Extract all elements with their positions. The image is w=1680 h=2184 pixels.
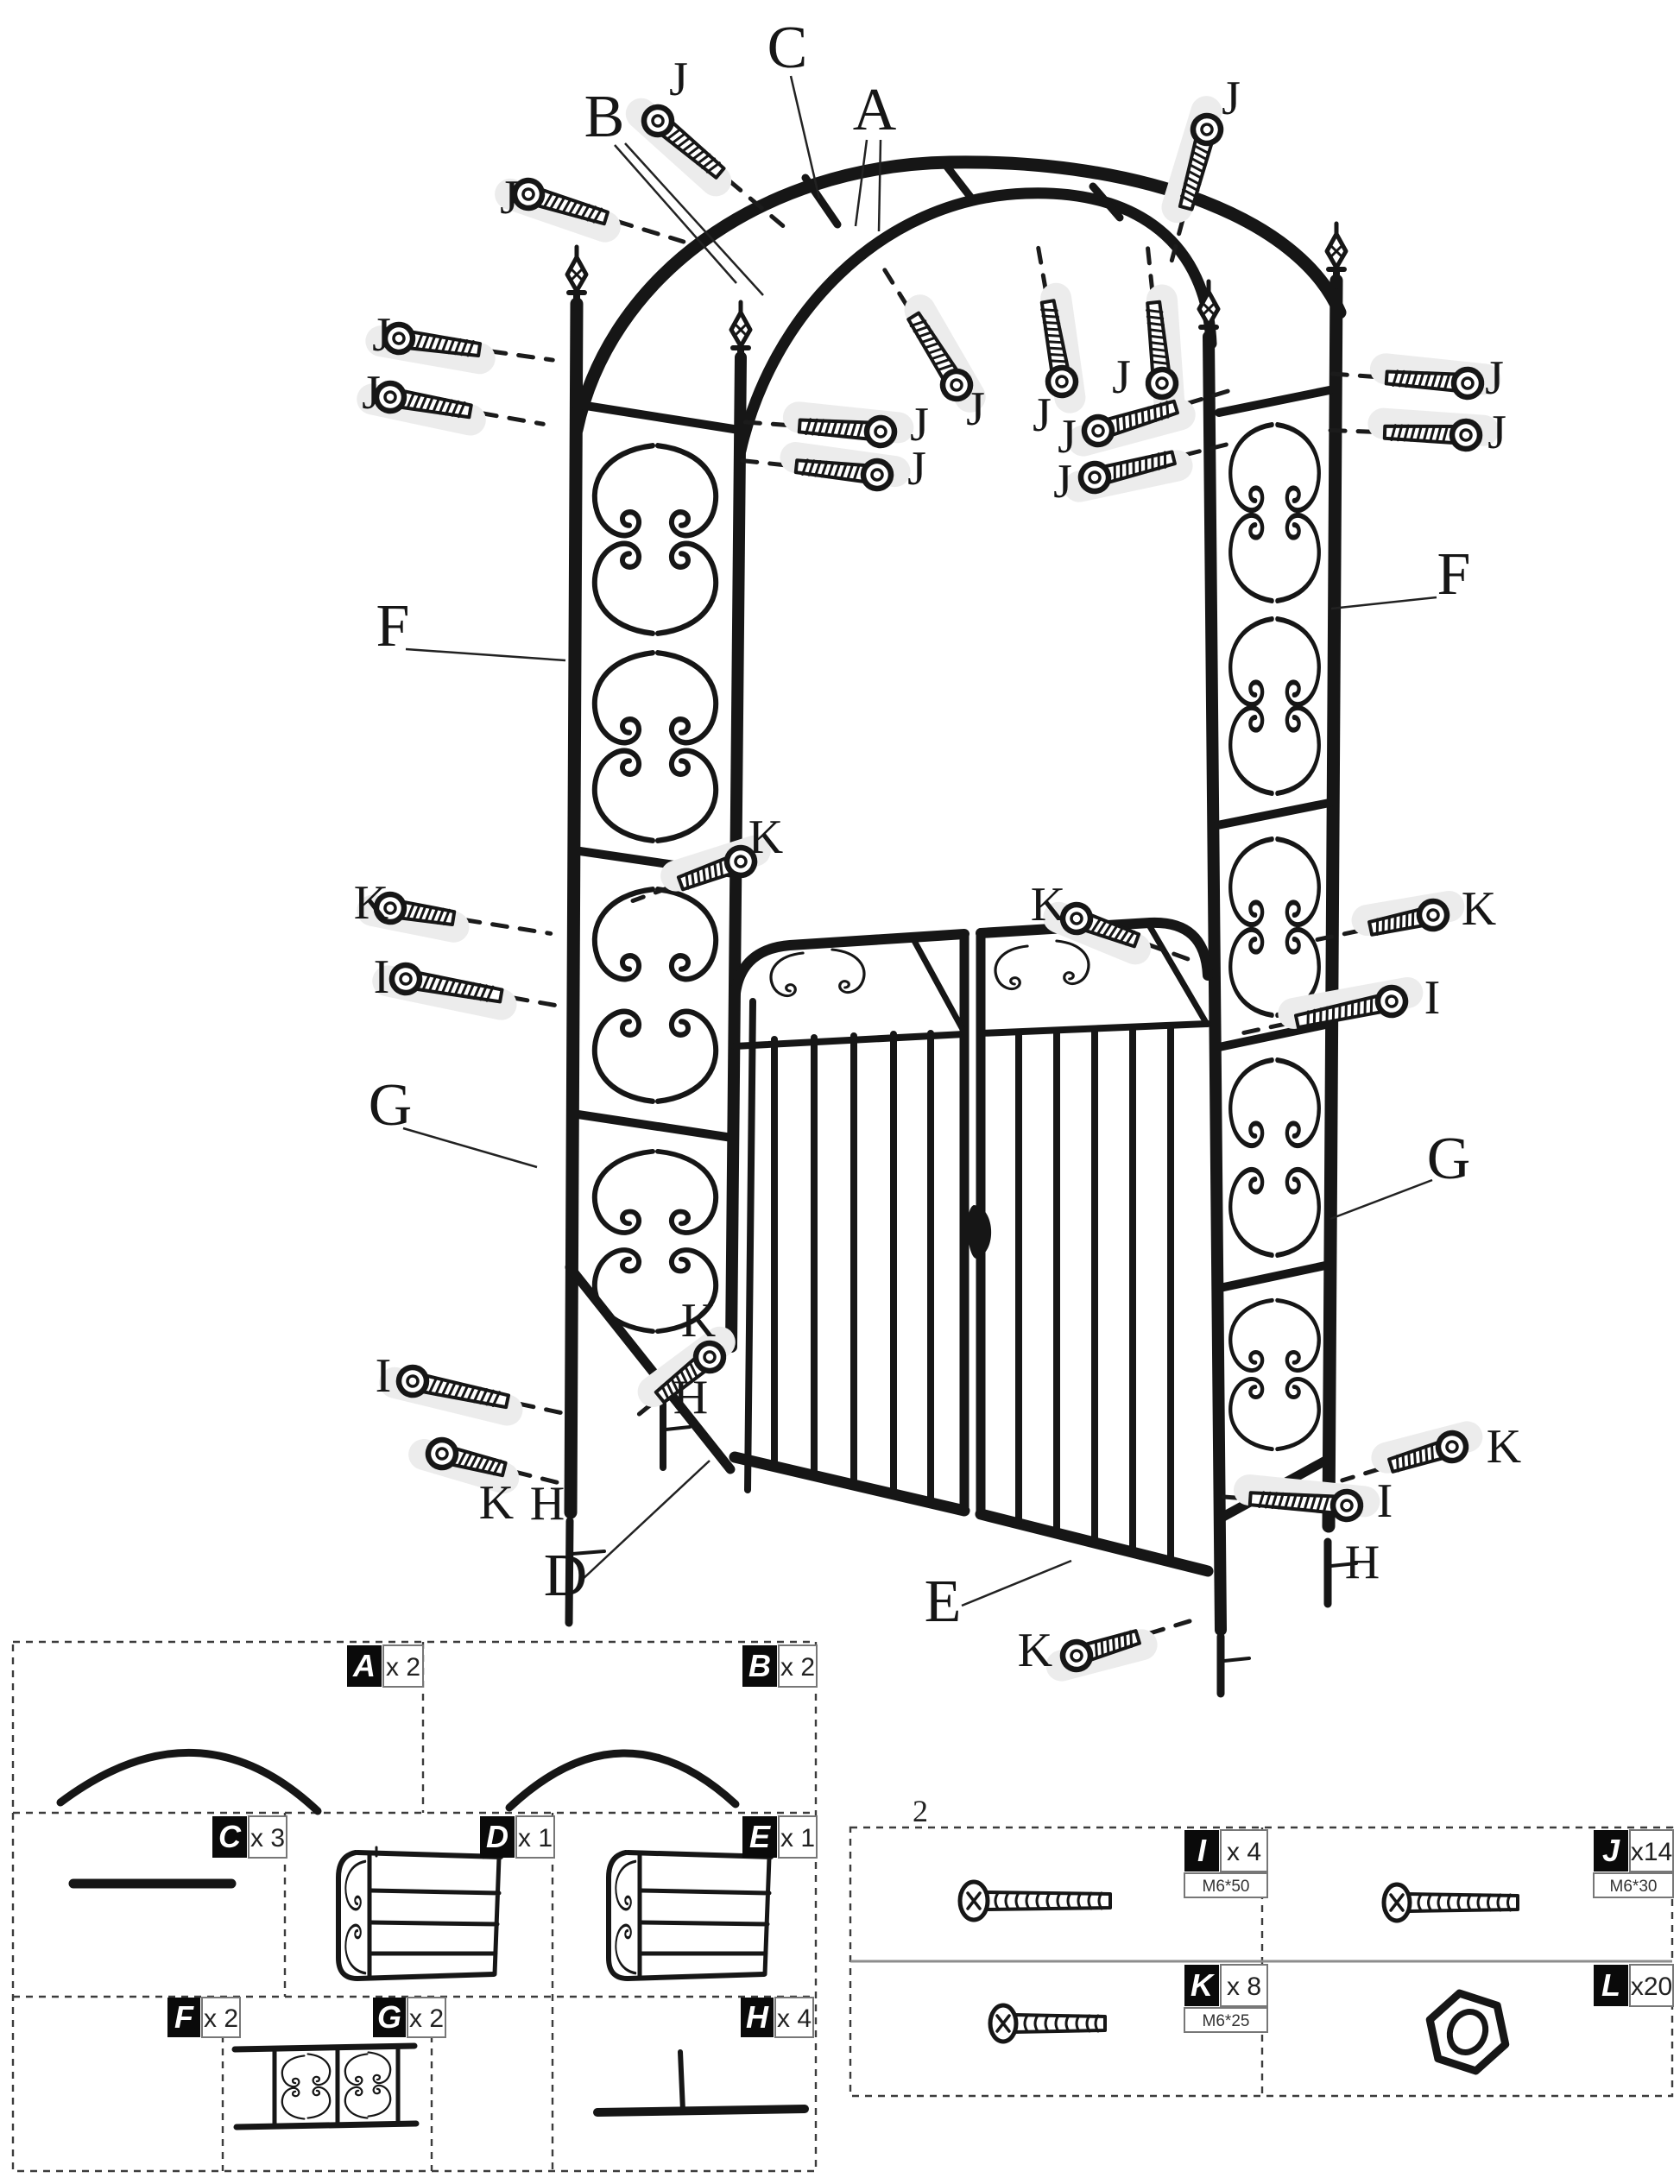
finial-icon — [567, 247, 586, 309]
exploded-screw-J — [1156, 110, 1225, 274]
callout-label-K: K — [1487, 1420, 1521, 1474]
screw-insert-dashes — [1149, 1618, 1200, 1633]
hardware-letter: L — [1601, 1967, 1620, 2003]
hardware-size: M6*25 — [1203, 2012, 1250, 2030]
screw-insert-dashes — [1342, 1469, 1380, 1480]
exploded-screw-J — [380, 322, 555, 374]
screw-I-icon — [960, 1882, 1110, 1920]
part-letter: D — [486, 1819, 508, 1854]
hardware-badge-L: L x20 — [1594, 1965, 1673, 2006]
callout-label-J: J — [500, 171, 519, 224]
screw-K-icon — [1366, 898, 1453, 942]
leader-line — [580, 1461, 710, 1581]
hardware-count: x20 — [1631, 1973, 1672, 2001]
exploded-screw-J — [733, 446, 895, 490]
callout-label-J: J — [362, 366, 381, 420]
screw-insert-dashes — [491, 351, 553, 360]
screw-insert-dashes — [880, 262, 907, 306]
part-count: x 2 — [409, 2004, 444, 2033]
screw-J-icon — [1034, 298, 1079, 401]
screw-insert-dashes — [633, 1404, 650, 1418]
part-A-arc — [60, 1752, 318, 1811]
part-letter: A — [352, 1648, 376, 1683]
exploded-screw-K — [1338, 1429, 1473, 1493]
callout-label-I: I — [1377, 1474, 1393, 1528]
exploded-screw-I — [393, 1364, 572, 1428]
hardware-badge-I: I x 4 M6*50 — [1184, 1830, 1267, 1897]
leader-line — [1331, 597, 1437, 609]
screw-J-icon — [371, 381, 475, 426]
part-badge-C: C x 3 — [212, 1816, 287, 1858]
screw-J-icon — [508, 176, 611, 232]
part-count: x 1 — [780, 1824, 815, 1853]
part-badge-D: D x 1 — [480, 1816, 554, 1858]
callout-label-B: B — [584, 84, 625, 150]
part-letter: C — [218, 1819, 242, 1854]
leader-line — [962, 1561, 1071, 1606]
callout-label-I: I — [376, 1349, 392, 1403]
part-E-gate-leaf — [609, 1853, 771, 1979]
hardware-letter: J — [1602, 1833, 1620, 1868]
hardware-badge-J: J x14 M6*30 — [1594, 1830, 1673, 1897]
part-count: x 2 — [386, 1653, 420, 1682]
exploded-screw-J — [508, 176, 687, 255]
callout-label-F: F — [376, 593, 410, 660]
callout-label-K: K — [354, 876, 388, 930]
part-badge-B: B x 2 — [742, 1645, 817, 1687]
right-panel-scrollwork — [1230, 425, 1319, 1449]
callout-label-K: K — [1462, 882, 1496, 936]
hardware-list: 2 I x 4 M6*50 J x14 M6*30 K x 8 — [850, 1794, 1673, 2096]
hardware-letter: K — [1191, 1967, 1216, 2003]
screw-insert-dashes — [465, 920, 551, 934]
part-count: x 1 — [518, 1824, 553, 1853]
leader-line — [406, 649, 565, 660]
finial-icon — [1327, 224, 1346, 286]
screw-insert-dashes — [1148, 944, 1198, 963]
screw-insert-dashes — [482, 413, 543, 425]
exploded-screw-J — [868, 255, 977, 407]
screw-K-icon — [1056, 1623, 1143, 1674]
post-left-front — [571, 304, 577, 1512]
nut-L-icon — [1424, 1990, 1512, 2074]
callout-label-K: K — [1018, 1624, 1052, 1677]
screw-J-icon — [1384, 1884, 1518, 1921]
part-D-gate-leaf — [338, 1847, 501, 1979]
screw-J-icon — [1384, 363, 1486, 398]
callout-label-H: H — [673, 1371, 708, 1424]
gate-drawing — [735, 923, 1208, 1571]
exploded-screw-J — [736, 407, 899, 446]
part-G-scroll-panel — [235, 2046, 416, 2127]
leader-line — [1330, 1180, 1432, 1219]
callout-label-J: J — [1222, 72, 1241, 125]
callout-label-G: G — [369, 1072, 413, 1139]
part-badge-H: H x 4 — [741, 1998, 813, 2037]
hardware-count: x14 — [1631, 1838, 1672, 1866]
screw-insert-dashes — [1323, 430, 1373, 432]
callout-label-H: H — [1345, 1536, 1380, 1589]
callout-label-D: D — [544, 1543, 588, 1609]
leader-line — [856, 140, 867, 226]
callout-label-J: J — [907, 442, 926, 496]
hardware-letter: I — [1197, 1833, 1207, 1868]
callout-label-J: J — [1033, 388, 1052, 442]
callout-label-I: I — [1424, 971, 1441, 1025]
screw-K-icon — [1386, 1429, 1473, 1480]
callout-label-A: A — [853, 77, 897, 143]
exploded-screw-J — [1323, 416, 1484, 449]
callout-label-E: E — [925, 1569, 962, 1635]
exploded-screw-J — [1134, 242, 1178, 401]
callout-label-J: J — [669, 53, 688, 106]
screw-insert-dashes — [617, 222, 684, 242]
exploded-screw-J — [635, 99, 794, 238]
hardware-count: x 8 — [1227, 1973, 1261, 2001]
garden-arch-assembly-diagram: ABCDEFFGGHHHIIIIJJJJJJJJJJJJJJKKKKKKKK — [0, 0, 1680, 2184]
exploded-screw-K — [371, 892, 553, 947]
part-B-arc — [509, 1753, 736, 1808]
callout-label-J: J — [1112, 350, 1131, 404]
part-letter: H — [746, 1999, 769, 2035]
exploded-screw-I — [387, 963, 566, 1020]
part-count: x 4 — [777, 2004, 812, 2033]
callout-label-I: I — [374, 950, 390, 1004]
screw-insert-dashes — [519, 1404, 570, 1414]
part-badge-F: F x 2 — [167, 1998, 240, 2037]
callout-label-J: J — [1485, 351, 1504, 405]
screw-I-icon — [387, 963, 506, 1010]
gate-handle — [968, 1205, 991, 1259]
part-badge-E: E x 1 — [742, 1816, 817, 1858]
hardware-size: M6*50 — [1203, 1878, 1250, 1896]
exploded-screw-J — [371, 381, 546, 438]
callout-label-J: J — [1487, 406, 1506, 459]
screw-I-icon — [1247, 1485, 1365, 1520]
exploded-screw-J — [1323, 359, 1486, 398]
callout-label-J: J — [372, 308, 391, 362]
callout-label-K: K — [479, 1476, 514, 1530]
hardware-badge-K: K x 8 M6*25 — [1184, 1965, 1267, 2032]
callout-label-C: C — [767, 15, 808, 81]
step-number: 2 — [913, 1794, 928, 1828]
part-count: x 2 — [780, 1653, 815, 1682]
part-letter: F — [174, 1999, 194, 2035]
part-count: x 3 — [250, 1824, 285, 1853]
callout-letters: ABCDEFFGGHHHIIIIJJJJJJJJJJJJJJKKKKKKKK — [354, 15, 1521, 1677]
exploded-screw-J — [1024, 241, 1078, 401]
parts-list: A x 2 B x 2 C x 3 D x 1 E x 1 — [13, 1642, 817, 2171]
callout-label-J: J — [966, 382, 985, 436]
leader-line — [403, 1128, 537, 1167]
part-H-stake — [597, 2052, 805, 2112]
post-right-back — [1209, 337, 1221, 1630]
callout-label-H: H — [530, 1477, 565, 1531]
callout-label-G: G — [1427, 1126, 1471, 1192]
left-panel-scrollwork — [595, 445, 716, 1331]
part-count: x 2 — [204, 2004, 238, 2033]
screw-J-icon — [1383, 419, 1484, 450]
screw-insert-dashes — [513, 998, 564, 1007]
part-badge-G: G x 2 — [373, 1998, 445, 2037]
part-letter: B — [748, 1648, 771, 1683]
parts-box-border — [13, 1642, 816, 2171]
leader-line — [879, 140, 881, 231]
part-letter: G — [377, 1999, 401, 2035]
assembly-instruction-page: { "ink_color": "#161616", "stray_step_nu… — [0, 0, 1680, 2184]
screw-J-icon — [793, 452, 896, 490]
screw-insert-dashes — [1147, 243, 1153, 291]
screw-J-icon — [380, 322, 483, 363]
screw-K-icon — [990, 2005, 1105, 2042]
callout-label-K: K — [748, 811, 783, 864]
callout-label-K: K — [1031, 878, 1065, 931]
post-right-front — [1329, 281, 1336, 1526]
screw-insert-dashes — [1038, 243, 1046, 289]
callout-label-K: K — [681, 1294, 716, 1348]
finial-icon — [731, 302, 750, 364]
exploded-screw-K — [1056, 899, 1203, 975]
callout-label-F: F — [1437, 541, 1471, 608]
part-badge-A: A x 2 — [347, 1645, 423, 1687]
screw-I-icon — [393, 1364, 512, 1415]
exploded-screw-K — [1056, 1605, 1204, 1674]
callout-label-J: J — [1053, 455, 1072, 508]
part-letter: E — [749, 1819, 771, 1854]
screw-J-icon — [797, 412, 899, 446]
screw-J-icon — [1140, 300, 1178, 402]
hardware-size: M6*30 — [1610, 1878, 1658, 1896]
hardware-count: x 4 — [1227, 1838, 1261, 1866]
